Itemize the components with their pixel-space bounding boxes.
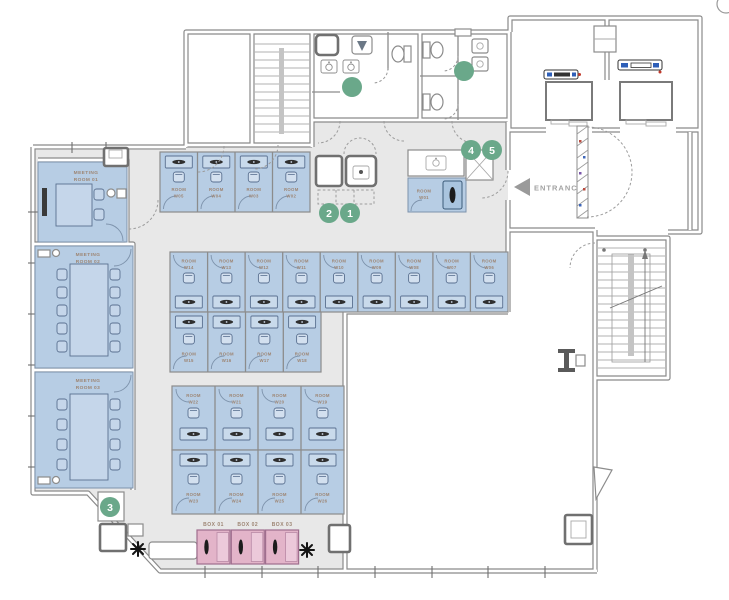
elevator-indicator <box>544 70 581 79</box>
room-word: ROOM <box>315 492 330 497</box>
sink-icon <box>472 39 488 53</box>
shelf <box>455 29 471 36</box>
room-word: ROOM <box>315 393 330 398</box>
bench <box>149 542 197 559</box>
toilet-icon <box>423 94 443 110</box>
toilet-icon <box>423 42 443 58</box>
room-code: W09 <box>372 265 382 270</box>
shaft-box <box>104 148 128 166</box>
room-code: W26 <box>318 499 328 504</box>
stairs-top <box>254 44 310 134</box>
marker-4-number: 4 <box>468 145 474 157</box>
room-code: W04 <box>211 194 221 199</box>
room-word: ROOM <box>295 352 310 357</box>
pillar <box>316 156 342 186</box>
plant-icon <box>131 542 145 556</box>
marker-pin-1[interactable]: 1 <box>340 203 360 223</box>
floor-plan: MEETING ROOM 01 MEETING ROOM 02 MEETING … <box>0 0 729 600</box>
room-code: W17 <box>260 358 270 363</box>
room-code: W22 <box>189 400 199 405</box>
room-code: W23 <box>189 499 199 504</box>
marker-2-number: 2 <box>326 208 332 220</box>
workstation-row-lower-upper: ROOM W22 ROOM W21 ROOM W20 ROOM W19 <box>172 386 344 450</box>
window-symbol <box>594 467 612 499</box>
elevator-2 <box>618 60 672 126</box>
room-word: ROOM <box>247 187 262 192</box>
room-word: ROOM <box>229 393 244 398</box>
meeting-room-01-label: MEETING <box>74 170 99 176</box>
room-word: ROOM <box>417 189 432 194</box>
service-shaft <box>594 26 616 52</box>
room-word: ROOM <box>272 492 287 497</box>
entrance-arrow-icon <box>514 178 530 196</box>
room-word: ROOM <box>407 259 422 264</box>
marker-5-number: 5 <box>489 145 495 157</box>
marker-pin-5[interactable]: 5 <box>482 140 502 160</box>
sink-icon <box>321 60 337 73</box>
room-code: W18 <box>297 358 307 363</box>
workstation-row-middle-upper: ROOM W14 ROOM W13 ROOM W12 ROOM W11 ROOM… <box>170 252 508 312</box>
pillar <box>565 515 592 544</box>
room-code: W25 <box>275 499 285 504</box>
box-booth <box>197 530 230 564</box>
room-code: W14 <box>184 265 194 270</box>
room-code: W06 <box>484 265 494 270</box>
box-01-label: BOX 01 <box>203 522 224 528</box>
toilet-men <box>312 32 411 92</box>
sink-icon <box>343 60 359 73</box>
room-word: ROOM <box>219 352 234 357</box>
room-code: W12 <box>259 265 269 270</box>
room-word: ROOM <box>369 259 384 264</box>
room-code: W19 <box>318 400 328 405</box>
meeting-room-01-label2: ROOM 01 <box>74 177 98 183</box>
meeting-room-03-label: MEETING <box>76 378 101 384</box>
room-word: ROOM <box>209 187 224 192</box>
floor-plan-page: MEETING ROOM 01 MEETING ROOM 02 MEETING … <box>0 0 729 600</box>
stairs-right <box>598 248 665 368</box>
meeting-room-02-label: MEETING <box>76 252 101 258</box>
room-word: ROOM <box>482 259 497 264</box>
box-booth <box>266 530 299 564</box>
box-03-label: BOX 03 <box>272 522 293 528</box>
toilet-icon <box>392 46 411 62</box>
room-code: W11 <box>297 265 307 270</box>
room-word: ROOM <box>182 259 197 264</box>
room-code: W20 <box>275 400 285 405</box>
elevator-1 <box>544 70 592 126</box>
marker-pin-4[interactable]: 4 <box>461 140 481 160</box>
workstation-row-top: ROOM W05 ROOM W04 ROOM W03 ROOM W02 <box>160 152 310 212</box>
room-word: ROOM <box>294 259 309 264</box>
room-code: W13 <box>222 265 232 270</box>
tv-screen <box>42 188 47 216</box>
room-word: ROOM <box>444 259 459 264</box>
room-code: W15 <box>184 358 194 363</box>
pillar <box>329 525 350 552</box>
room-word: ROOM <box>332 259 347 264</box>
room-code: W10 <box>334 265 344 270</box>
workstation-row-lower-lower: ROOM W23 ROOM W24 ROOM W25 ROOM W26 <box>172 450 344 514</box>
room-code: W05 <box>174 194 184 199</box>
entrance-glass-door <box>577 126 588 218</box>
box-02-label: BOX 02 <box>237 522 258 528</box>
kitchenette <box>408 150 464 176</box>
cabinet-small <box>128 524 143 536</box>
marker-pin-3[interactable]: 3 <box>100 497 120 517</box>
meeting-room-03: MEETING ROOM 03 <box>35 372 133 488</box>
room-word: ROOM <box>284 187 299 192</box>
locker <box>316 35 338 55</box>
room-word: ROOM <box>257 352 272 357</box>
column-ibeam-icon <box>558 349 585 372</box>
marker-pin-2[interactable]: 2 <box>319 203 339 223</box>
room-word: ROOM <box>272 393 287 398</box>
meeting-room-03-label2: ROOM 03 <box>76 385 100 391</box>
corner-badge <box>717 0 729 13</box>
meeting-room-02: MEETING ROOM 02 <box>35 246 133 368</box>
box-booth <box>231 530 264 564</box>
room-code: W21 <box>232 400 242 405</box>
green-dot <box>342 77 362 97</box>
room-code: W24 <box>232 499 242 504</box>
room-code: W02 <box>286 194 296 199</box>
room-code: W16 <box>222 358 232 363</box>
room-code: W08 <box>409 265 419 270</box>
room-word: ROOM <box>219 259 234 264</box>
meeting-room-01: MEETING ROOM 01 <box>38 162 127 242</box>
workstation-row-middle-lower: ROOM W15 ROOM W16 ROOM W17 ROOM W18 <box>170 312 321 372</box>
meeting-room-02-label2: ROOM 02 <box>76 259 100 265</box>
room-word: ROOM <box>172 187 187 192</box>
room-word: ROOM <box>229 492 244 497</box>
elevator-indicator <box>618 60 662 74</box>
room-code: W03 <box>249 194 259 199</box>
entrance-label: ENTRANCE <box>534 184 584 193</box>
urinal-icon <box>352 36 372 54</box>
pillar <box>100 524 126 551</box>
room-code: W01 <box>419 195 429 200</box>
room-word: ROOM <box>182 352 197 357</box>
room-word: ROOM <box>257 259 272 264</box>
marker-3-number: 3 <box>107 502 113 514</box>
phone-booth-w01: ROOM W01 <box>408 178 466 212</box>
sink-icon <box>472 57 488 71</box>
green-dot <box>454 61 474 81</box>
entrance: ENTRANCE <box>514 126 632 218</box>
toilet-women <box>420 29 488 120</box>
plant-icon <box>300 543 314 557</box>
marker-1-number: 1 <box>347 208 353 220</box>
room-word: ROOM <box>186 492 201 497</box>
room-code: W07 <box>447 265 457 270</box>
room-word: ROOM <box>186 393 201 398</box>
